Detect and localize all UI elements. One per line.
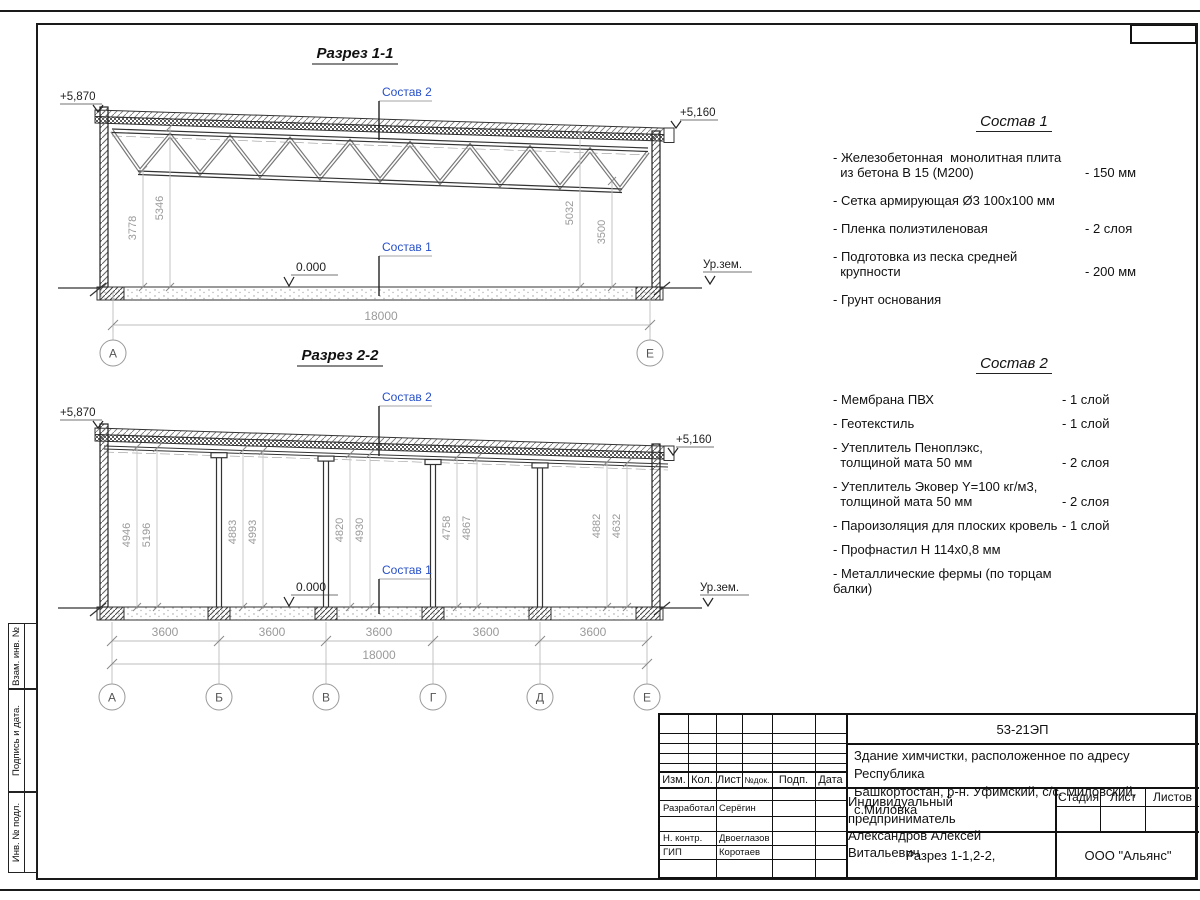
tb-role: Н. контр. — [663, 832, 716, 845]
divider — [660, 753, 846, 754]
dim-label: 5346 — [154, 196, 166, 220]
axis-label: Г — [430, 691, 437, 705]
elev-label: +5,160 — [680, 107, 716, 119]
dim-label: 18000 — [362, 648, 396, 662]
divider — [660, 743, 846, 744]
side-stamp-vzam: Взам. инв. № — [8, 623, 37, 689]
dim-label: 4758 — [441, 516, 453, 540]
section2-right-wall — [652, 444, 660, 607]
dim-label: 3778 — [127, 216, 139, 240]
divider — [772, 715, 773, 877]
dim-label: 5032 — [564, 201, 576, 225]
composition-1-list: Состав 1 - Железобетонная монолитная пли… — [833, 113, 1195, 320]
axis-label: Д — [536, 691, 544, 705]
tb-sheets-col: Листов — [1146, 788, 1199, 806]
dim-label: 18000 — [364, 309, 398, 323]
section2-total-dim: 18000 — [107, 648, 652, 671]
section1-elev-right: +5,160 — [671, 107, 718, 128]
comp2-ref-label: Состав 2 — [382, 390, 432, 404]
list-item: - Профнастил Н 114х0,8 мм — [833, 542, 1195, 557]
list-item: - Геотекстиль - 1 слой — [833, 416, 1195, 431]
dim-label: 4882 — [591, 514, 603, 538]
tb-role: ГИП — [663, 846, 716, 859]
tb-name: Коротаев — [719, 846, 772, 859]
list-item: - Утеплитель Эковер Y=100 кг/м3, толщино… — [833, 479, 1195, 509]
list-item: - Пленка полиэтиленовая - 2 слоя — [833, 221, 1195, 236]
comp1-ref-label: Состав 1 — [382, 240, 432, 254]
section1-roof-slab — [95, 110, 674, 143]
tb-document-code: 53-21ЭП — [846, 715, 1199, 743]
dim-label: 4993 — [247, 520, 259, 544]
dim-label: 4930 — [354, 518, 366, 542]
axis-label: В — [322, 691, 330, 705]
composition-2-list: Состав 2 - Мембрана ПВХ - 1 слой - Геоте… — [833, 355, 1195, 605]
section2-floor-slab — [97, 607, 663, 620]
tb-col-izm: Изм. — [660, 772, 688, 788]
side-stamp-inv: Инв. № подл. — [8, 792, 37, 873]
divider — [815, 715, 816, 877]
tb-stage-col: Стадия — [1057, 788, 1100, 806]
elev-label: +5,160 — [676, 434, 712, 446]
dim-label: 4883 — [227, 520, 239, 544]
axis-label: Е — [643, 691, 651, 705]
section2-bay-dims: 3600 3600 3600 3600 3600 — [107, 622, 652, 648]
section2-left-wall — [100, 424, 108, 607]
tb-sheet-col: Лист — [1101, 788, 1145, 806]
drawing-sheet: Разрез 1-1 — [0, 0, 1200, 900]
tb-col-podp: Подп. — [772, 772, 815, 788]
list-item: - Железобетонная монолитная плита из бет… — [833, 150, 1195, 180]
tb-sheet-title: Разрез 1-1,2-2, — [846, 833, 1055, 877]
list-item: - Металлические фермы (по торцам балки) — [833, 566, 1195, 596]
section-1-1: Разрез 1-1 — [58, 45, 752, 366]
axis-label: А — [108, 691, 116, 705]
dim-label: 4820 — [334, 518, 346, 542]
divider — [660, 859, 846, 860]
tb-company: ООО "Альянс" — [1057, 833, 1199, 877]
section1-ground-mark: Ур.зем. — [703, 259, 752, 284]
composition-2-title: Состав 2 — [833, 355, 1195, 374]
elev-label: +5,870 — [60, 407, 96, 419]
comp1-ref-label: Состав 1 — [382, 563, 432, 577]
dim-label: 5196 — [141, 523, 153, 547]
title-block: Изм. Кол. Лист №док. Подп. Дата Разработ… — [658, 713, 1197, 879]
side-stamp-podpis: Подпись и дата. — [8, 689, 37, 792]
tb-name: Двоеглазов — [719, 832, 772, 845]
list-item: - Сетка армирующая Ø3 100х100 мм — [833, 193, 1195, 208]
divider — [716, 715, 717, 877]
zero-level-label: 0.000 — [296, 260, 326, 274]
dim-label: 3600 — [473, 625, 500, 639]
section1-title: Разрез 1-1 — [316, 45, 393, 62]
dim-label: 3600 — [366, 625, 393, 639]
dim-label: 3600 — [259, 625, 286, 639]
tb-name: Серёгин — [719, 801, 772, 816]
dim-label: 3600 — [152, 625, 179, 639]
section1-left-wall — [100, 107, 108, 287]
divider — [660, 816, 846, 817]
ground-label: Ур.зем. — [700, 582, 739, 594]
list-item: - Грунт основания — [833, 292, 1195, 307]
section-2-2: Разрез 2-2 — [58, 347, 749, 710]
tb-col-kol: Кол. — [688, 772, 716, 788]
list-item: - Пароизоляция для плоских кровель - 1 с… — [833, 518, 1195, 533]
section2-comp1-ref: Состав 1 — [379, 563, 432, 614]
dim-label: 4632 — [611, 514, 623, 538]
comp2-ref-label: Состав 2 — [382, 85, 432, 99]
dim-label: 4946 — [121, 523, 133, 547]
tb-col-list: Лист — [716, 772, 742, 788]
axis-label: Б — [215, 691, 223, 705]
elev-label: +5,870 — [60, 91, 96, 103]
zero-level-label: 0.000 — [296, 580, 326, 594]
section1-elev-left: +5,870 — [60, 91, 103, 112]
tb-role: Разработал — [663, 801, 716, 816]
ground-label: Ур.зем. — [703, 259, 742, 271]
list-item: - Утеплитель Пеноплэкс, толщиной мата 50… — [833, 440, 1195, 470]
section1-zero-level: 0.000 — [284, 260, 338, 286]
section2-elev-right: +5,160 — [668, 434, 714, 455]
divider — [660, 763, 846, 764]
section2-zero-level: 0.000 — [284, 580, 338, 606]
section2-elev-left: +5,870 — [60, 407, 103, 428]
axis-label: А — [109, 347, 117, 361]
dim-label: 3500 — [596, 220, 608, 244]
divider — [846, 743, 1199, 745]
tb-col-data: Дата — [815, 772, 846, 788]
dim-label: 4867 — [461, 516, 473, 540]
section1-right-wall — [652, 131, 660, 287]
axis-label: Е — [646, 347, 654, 361]
dim-label: 3600 — [580, 625, 607, 639]
section1-axes: А Е — [100, 325, 663, 366]
tb-col-ndok: №док. — [742, 772, 772, 788]
section2-ground-mark: Ур.зем. — [700, 582, 749, 606]
section2-height-dims — [133, 443, 631, 611]
list-item: - Подготовка из песка средней крупности … — [833, 249, 1195, 279]
composition-1-title: Состав 1 — [833, 113, 1195, 132]
divider — [660, 733, 846, 734]
section2-title: Разрез 2-2 — [301, 347, 379, 364]
section2-roof-slab — [95, 428, 674, 461]
list-item: - Мембрана ПВХ - 1 слой — [833, 392, 1195, 407]
